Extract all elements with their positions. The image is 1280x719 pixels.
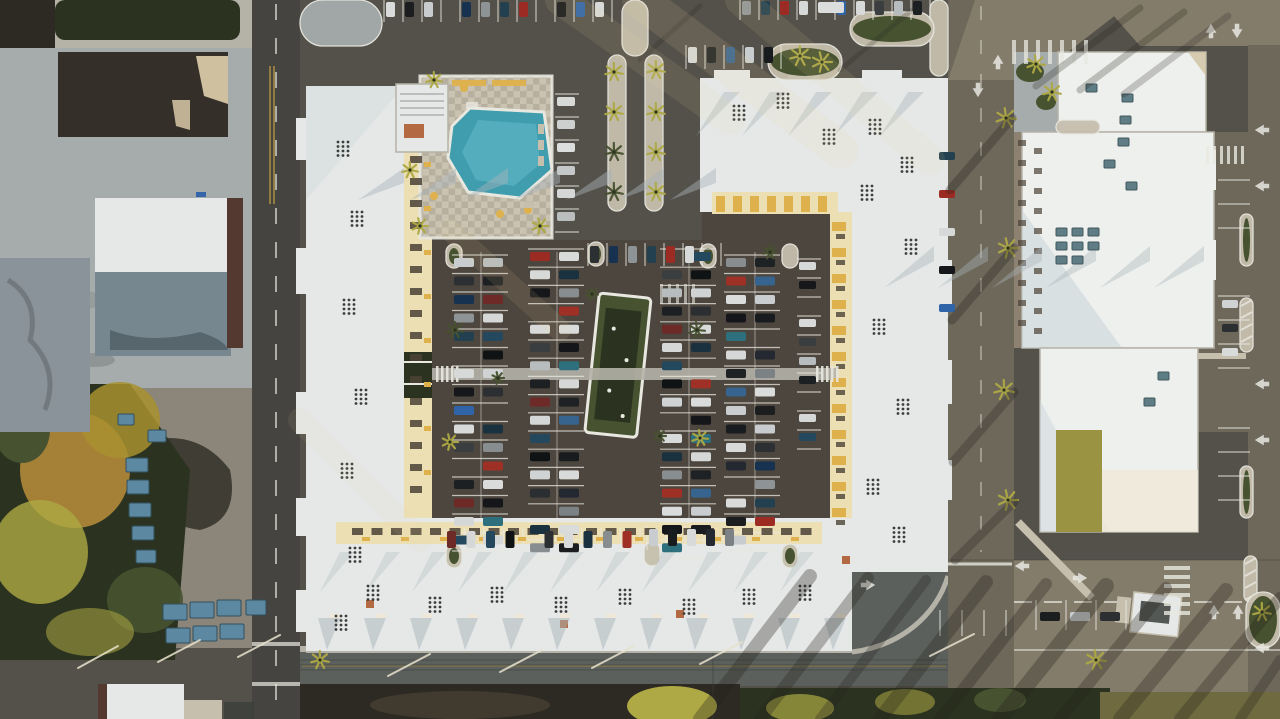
parked-car [691,416,711,425]
crosswalk-bar [816,366,819,382]
parked-car [530,416,550,425]
parked-car [799,338,816,346]
balcony-awning [424,426,431,431]
balcony-awning [767,196,776,212]
parked-car [483,351,503,360]
roof-vent [342,154,345,157]
balcony-awning [832,274,846,283]
balcony-awning [424,382,431,387]
roof-vent [866,189,869,192]
facade-window [1034,228,1042,234]
facade-window [1034,288,1042,294]
balcony-window [410,244,422,251]
roof-vent [861,185,864,188]
roof-vent [753,602,756,605]
balcony-window [410,442,422,449]
roof-vent [902,408,905,411]
balcony-window [410,486,422,493]
parked-car [662,270,682,279]
balcony-window [836,416,845,421]
roof-vent [748,589,751,592]
parked-car [856,1,865,15]
parked-car [545,531,554,548]
roof-vent [434,610,437,613]
parked-car [799,414,816,422]
roof-vent [683,603,686,606]
facade-window [1018,200,1026,206]
parked-car [799,262,816,270]
parked-car [454,517,474,526]
parked-car [666,246,675,263]
balcony-window [762,528,773,535]
dumpster [127,480,149,494]
crosswalk-bar [1164,566,1190,570]
roof-vent [911,170,914,173]
roof-vent [555,597,558,600]
roof-vent [340,619,343,622]
roof-vent [743,598,746,601]
roof-vent [434,597,437,600]
parked-car [662,288,682,297]
roof-vent [340,624,343,627]
parked-car [939,228,955,236]
roof-vent [342,145,345,148]
roof-vent [872,492,875,495]
parked-car [662,379,682,388]
parked-car [726,425,746,434]
roof-vent [619,593,622,596]
chimney [366,600,374,608]
parked-car [755,406,775,415]
parked-car [628,246,637,263]
parked-car [662,398,682,407]
balcony-awning [424,294,431,299]
roof-vent [429,610,432,613]
roof-vent [354,556,357,559]
roof-vent [343,303,346,306]
umbrella [496,210,504,218]
parked-car [691,452,711,461]
roof-vent [688,612,691,615]
roof-vent [910,252,913,255]
roof-vent [861,194,864,197]
parked-car [1222,324,1238,332]
roof-vent [809,594,812,597]
roof-vent [898,540,901,543]
roof-vent [905,243,908,246]
roof-vent [683,608,686,611]
roof-vent [898,531,901,534]
parked-car [875,1,884,15]
roof-vent [439,601,442,604]
crosswalk-bar [1024,40,1028,64]
balcony-awning [818,196,827,212]
roof-vent [555,606,558,609]
roof-vent [693,603,696,606]
parked-car [691,343,711,352]
hvac-unit [1056,242,1067,250]
parked-car [530,343,550,352]
small-building-edge [98,684,107,719]
roof-vent [915,243,918,246]
roof-vent [907,408,910,411]
roof-vent [883,323,886,326]
sunlit-gable-edge [698,614,708,618]
dumpster [129,503,151,517]
balcony-awning [832,300,846,309]
industrial-building-white-roof [95,198,231,272]
parked-car [623,531,632,548]
roof-vent [619,598,622,601]
roof-vent [872,488,875,491]
balcony-window [836,442,845,447]
roof-vent [688,603,691,606]
parked-car [755,295,775,304]
crosswalk-bar [441,366,444,382]
roof-vent [335,615,338,618]
parked-car [647,246,656,263]
roof-vent [565,610,568,613]
parked-car [557,143,575,152]
roof-vent [743,593,746,596]
roof-vent [565,606,568,609]
roof-vent [873,323,876,326]
roof-vent [867,492,870,495]
roof-vent [624,593,627,596]
chimney [842,556,850,564]
roof-vent [903,527,906,530]
parked-car [662,489,682,498]
dumpster [126,458,148,472]
parked-car [691,398,711,407]
roof-vent [753,589,756,592]
pool-steps [466,102,478,109]
roof-vent [359,551,362,554]
roof-vent [866,194,869,197]
roof-vent [738,105,741,108]
crosswalk-bar [1206,146,1209,164]
balcony-awning [832,404,846,413]
roof-vent [629,602,632,605]
hvac-unit [1126,182,1137,190]
roof-vent [748,598,751,601]
parked-car [557,166,575,175]
roof-bay [1206,240,1216,280]
roof-vent [753,598,756,601]
parked-car [662,452,682,461]
balcony-window [836,260,845,265]
balcony-window [372,528,383,535]
crosswalk-bar [1234,146,1237,164]
parked-car [483,443,503,452]
balcony-window [410,354,422,361]
crosswalk-bar [1164,602,1190,606]
roof-vent [372,589,375,592]
dumpster [136,550,156,563]
roof-vent [748,602,751,605]
roof-vent [353,299,356,302]
parked-car [530,489,550,498]
roof-vent [491,600,494,603]
roof-vent [683,612,686,615]
roof-vent [907,412,910,415]
roof-vent [356,220,359,223]
planter [1036,94,1056,110]
roof-vent [354,551,357,554]
roof-vent [434,601,437,604]
roof-vent [501,591,504,594]
roof-vent [340,615,343,618]
roof-vent [349,551,352,554]
sunlit-gable-edge [606,614,616,618]
parked-car [755,480,775,489]
roof-vent [903,536,906,539]
roof-vent [907,399,910,402]
balcony-window [410,376,422,383]
roof-vent [429,606,432,609]
roof-vent [915,252,918,255]
brick-wall-edge [227,198,243,348]
crosswalk-bar [446,366,449,382]
east-wing-roof [838,212,948,572]
lounge-chair [524,202,534,208]
parked-car [481,2,490,17]
small-building-annex [184,700,222,719]
parked-car [685,246,694,263]
crosswalk-bar [831,366,834,382]
balcony-awning [832,352,846,361]
roof-vent [342,141,345,144]
roof-vent [867,483,870,486]
parked-car [483,314,503,323]
dumpster [118,414,134,425]
roof-vent [355,389,358,392]
roof-vent [809,589,812,592]
roof-vent [624,602,627,605]
roof-vent [365,402,368,405]
balcony-awning [424,206,431,211]
parked-car [559,470,579,479]
parked-car [687,529,696,546]
facade-window [1018,300,1026,306]
roof-vent [878,323,881,326]
dumpster [148,430,166,442]
roof-vent [897,412,900,415]
roof-vent [360,398,363,401]
parked-car [726,258,746,267]
parked-car [483,480,503,489]
hatched-no-parking [684,284,687,304]
roof-vent [349,547,352,550]
parked-car [530,270,550,279]
facade-window [1034,208,1042,214]
roof-vent [345,615,348,618]
roof-vent [360,389,363,392]
lawn-patch [55,0,240,40]
balcony-awning [784,196,793,212]
roof-vent [872,483,875,486]
curb-island [300,0,382,46]
parked-car [559,452,579,461]
parked-car [454,369,474,378]
parked-car [799,281,816,289]
roof-vent [861,198,864,201]
crosswalk-bar [1220,146,1223,164]
hvac-unit [1144,398,1155,406]
parked-van [818,2,844,13]
parked-car [799,319,816,327]
roof-vent [871,198,874,201]
parked-car [454,277,474,286]
parked-car [755,388,775,397]
balcony-awning [596,537,604,541]
balcony-window [836,234,845,239]
balcony-awning [518,537,526,541]
parked-car [755,425,775,434]
curb-island [1240,214,1253,266]
roof-vent [367,585,370,588]
parked-car [691,470,711,479]
parked-car [454,388,474,397]
parked-car [500,2,509,17]
balcony-window [836,494,845,499]
cabana-awning [452,80,486,86]
roof-vent [910,248,913,251]
parked-car [530,434,550,443]
roof-vent [878,332,881,335]
crosswalk-bar [436,366,439,382]
roof-vent [491,587,494,590]
roof-vent [372,594,375,597]
parked-car [726,351,746,360]
dumpster [132,526,154,540]
roof-vent [560,610,563,613]
roof-vent [915,239,918,242]
parked-car [486,531,495,548]
parked-car [755,369,775,378]
roof-vent [877,483,880,486]
roof-vent [342,150,345,153]
west-wing-bay [296,590,306,632]
balcony-awning [557,537,565,541]
crosswalk-bar [1227,146,1230,164]
parked-car [799,1,808,15]
balcony-awning [440,537,448,541]
facade-window [1018,280,1026,286]
roof-vent [353,308,356,311]
parked-car [755,517,775,526]
balcony-awning [716,196,725,212]
balcony-window [781,528,792,535]
facade-window [1018,220,1026,226]
roof-vent [871,185,874,188]
parked-car [559,507,579,516]
roof-vent [905,252,908,255]
facade-window [1034,168,1042,174]
roof-vent [361,211,364,214]
roof-vent [353,312,356,315]
parked-car [405,2,414,17]
roof-vent [361,224,364,227]
parked-car [559,307,579,316]
roof-vent [359,556,362,559]
parked-car [454,295,474,304]
parked-car [799,376,816,384]
hvac-unit [1056,228,1067,236]
parked-car [454,406,474,415]
roof-vent [809,598,812,601]
parked-car [691,307,711,316]
roof-vent [359,547,362,550]
parked-car [1222,300,1238,308]
roof-vent [365,393,368,396]
roof-vent [872,479,875,482]
parked-car [894,1,903,15]
roof-vent [555,601,558,604]
balcony-awning [832,456,846,465]
parked-car [483,332,503,341]
sunlit-roof-section [1102,470,1198,532]
roof-vent [897,408,900,411]
parked-car [755,499,775,508]
balcony-window [410,200,422,207]
roof-vent [555,610,558,613]
roof-vent [910,243,913,246]
parked-car [559,379,579,388]
roof-vent [624,598,627,601]
parked-car [467,531,476,548]
parked-car [726,517,746,526]
aerial-photo: Top-down aerial photograph at golden hou… [0,0,1280,719]
roof-vent [748,593,751,596]
parked-car [454,443,474,452]
roof-vent [349,560,352,563]
balcony-window [410,310,422,317]
roof-vent [866,185,869,188]
parked-car [590,246,599,263]
parked-car [559,343,579,352]
balcony-awning [424,162,431,167]
roof-vent [871,194,874,197]
roof-vent [501,596,504,599]
balcony-window [410,332,422,339]
parked-car [726,443,746,452]
crosswalk-bar [1164,611,1190,615]
hvac-unit [1158,372,1169,380]
parked-car [691,270,711,279]
roof-vent [693,612,696,615]
roof-vent [873,319,876,322]
roof-vent [898,527,901,530]
roof-vent [439,610,442,613]
balcony-window [836,286,845,291]
parked-car [939,266,955,274]
roof-vent [901,166,904,169]
parked-car [483,388,503,397]
facade-window [1018,240,1026,246]
parked-car [424,2,433,17]
hvac-unit [1072,256,1083,264]
top-left-dark-lot [0,0,55,48]
roof-vent [629,589,632,592]
roof-vent [902,412,905,415]
roof-vent [565,597,568,600]
roof-vent [911,166,914,169]
parked-car [662,470,682,479]
parked-car [483,517,503,526]
roof-vent [688,599,691,602]
parked-car [559,288,579,297]
